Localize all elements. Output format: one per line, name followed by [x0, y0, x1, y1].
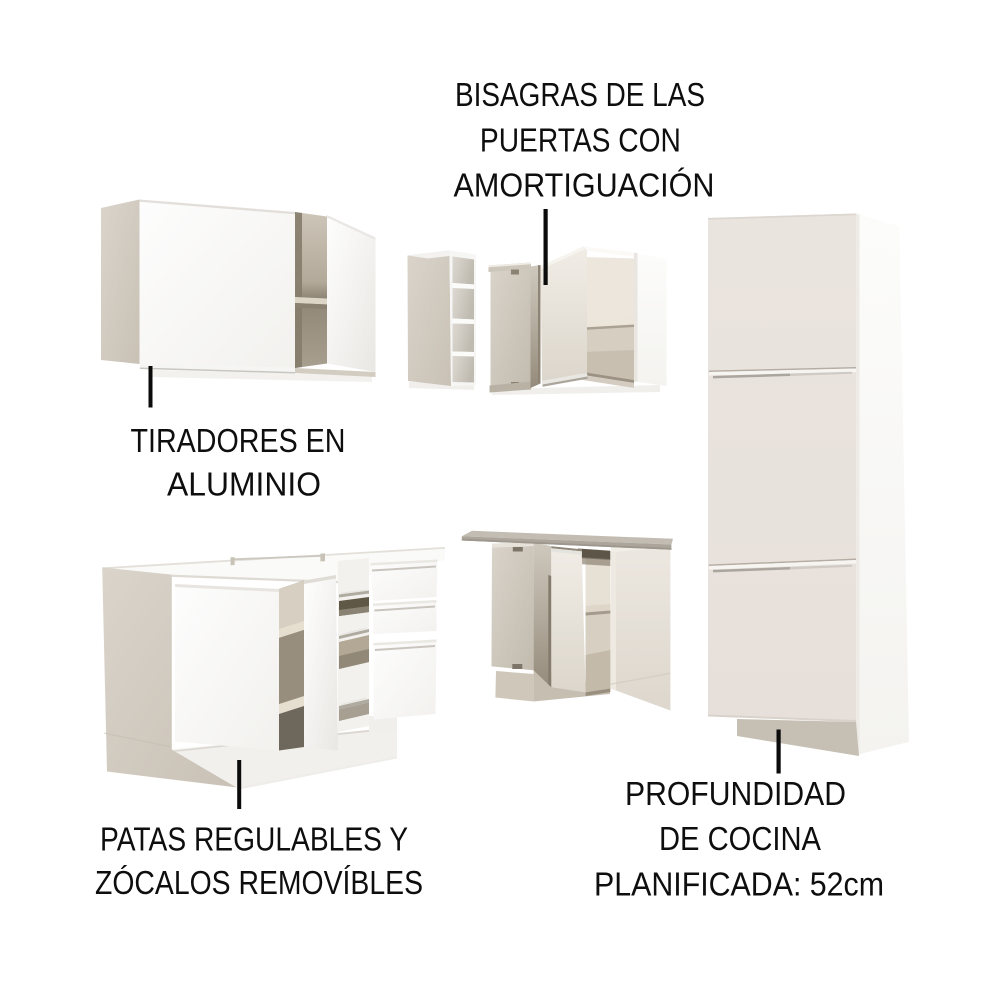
svg-text:DE COCINA: DE COCINA	[659, 820, 821, 857]
svg-text:ZÓCALOS REMOVÍBLES: ZÓCALOS REMOVÍBLES	[95, 864, 423, 901]
svg-text:TIRADORES EN: TIRADORES EN	[131, 422, 346, 459]
svg-text:PROFUNDIDAD: PROFUNDIDAD	[625, 775, 846, 812]
svg-text:PUERTAS CON: PUERTAS CON	[480, 122, 681, 159]
svg-text:AMORTIGUACIÓN: AMORTIGUACIÓN	[454, 167, 715, 204]
svg-text:PATAS REGULABLES Y: PATAS REGULABLES Y	[100, 821, 408, 858]
svg-text:PLANIFICADA: 52cm: PLANIFICADA: 52cm	[594, 866, 884, 903]
svg-text:ALUMINIO: ALUMINIO	[167, 466, 321, 503]
svg-text:BISAGRAS DE LAS: BISAGRAS DE LAS	[455, 76, 705, 113]
